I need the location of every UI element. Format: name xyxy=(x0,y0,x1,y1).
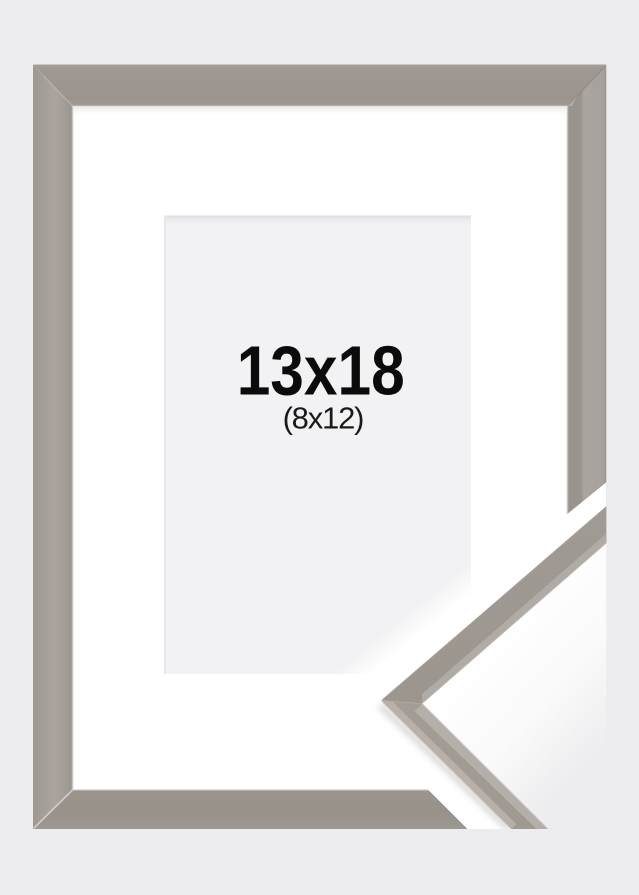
svg-text:13x18: 13x18 xyxy=(237,332,405,410)
svg-text:(8x12): (8x12) xyxy=(283,401,364,436)
